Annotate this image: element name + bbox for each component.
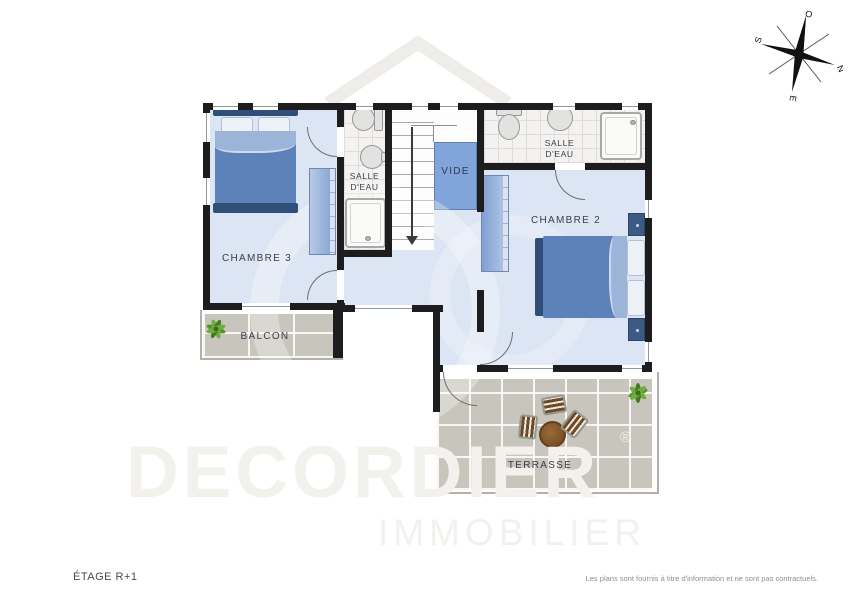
floor-label: ÉTAGE R+1 (73, 571, 138, 583)
terrasse-label: TERRASSE (490, 460, 590, 471)
window (645, 200, 652, 218)
watermark-brand: DECORDIER (126, 436, 600, 509)
compass-east-label: E (788, 95, 799, 102)
floor-plan-page: CHAMBRE 3 CHAMBRE 2 SALLE D'EAU SALLE D'… (0, 0, 848, 600)
stair-rail-line (433, 125, 434, 142)
window (440, 103, 458, 110)
window (645, 342, 652, 362)
wall (337, 250, 392, 257)
bed3-footboard (213, 203, 298, 213)
shower-drain (630, 120, 636, 125)
nightstand (628, 213, 645, 236)
disclaimer-text: Les plans sont fournis à titre d'informa… (586, 574, 818, 583)
chambre3-closet-shelf (330, 169, 335, 254)
window (253, 103, 278, 110)
toilet-bowl (352, 107, 375, 131)
window (622, 103, 638, 110)
plant-icon (626, 381, 650, 405)
window (203, 178, 210, 205)
bed2-sheet-fold (609, 236, 627, 318)
wall (553, 365, 622, 372)
stair-arrowhead-icon (406, 236, 418, 245)
compass-south-label: S (755, 35, 764, 44)
window (356, 103, 373, 110)
window (412, 103, 428, 110)
salle-deau-est-label: SALLE (532, 138, 587, 148)
stair-direction-arrow (411, 127, 413, 237)
watermark-roof-icon (300, 25, 540, 115)
nightstand (628, 318, 645, 341)
salle-deau-ouest-label: D'EAU (337, 182, 392, 192)
chambre2-label: CHAMBRE 2 (508, 215, 624, 226)
wall (585, 163, 645, 170)
compass-north-label: N (835, 64, 843, 74)
salle-deau-est-label: D'EAU (532, 149, 587, 159)
compass-rose: O S N E (755, 8, 843, 102)
bed2-pillow (627, 280, 645, 316)
wall (434, 365, 443, 372)
toilet (374, 107, 383, 131)
door-opening (337, 127, 344, 157)
stair-rail-line (411, 125, 457, 126)
wall (333, 310, 343, 358)
door-opening (337, 270, 344, 300)
window (213, 103, 238, 110)
wall (642, 365, 652, 372)
window (203, 113, 210, 142)
wall (477, 290, 484, 332)
watermark-subtitle: IMMOBILIER (378, 514, 646, 551)
wall (645, 110, 652, 372)
vide-label: VIDE (434, 166, 477, 177)
bed3-sheet-fold (215, 131, 296, 153)
salle-deau-ouest-label: SALLE (337, 171, 392, 181)
window (553, 103, 575, 110)
window (622, 365, 642, 372)
shower-tray (345, 198, 386, 248)
window (355, 305, 412, 312)
wall (433, 305, 440, 412)
wall (477, 110, 484, 212)
wall (477, 163, 555, 170)
watermark-registered: ® (620, 430, 631, 445)
wall (477, 365, 508, 372)
window (508, 365, 553, 372)
balcon-label: BALCON (225, 331, 305, 342)
chambre3-label: CHAMBRE 3 (199, 253, 315, 264)
balcony-door (242, 303, 290, 310)
bed2-pillow (627, 240, 645, 276)
stairwell-floor (434, 110, 477, 142)
shower-tray (600, 112, 642, 160)
compass-west-label: O (804, 8, 813, 19)
toilet-bowl (498, 114, 520, 140)
shower-drain (365, 236, 371, 241)
